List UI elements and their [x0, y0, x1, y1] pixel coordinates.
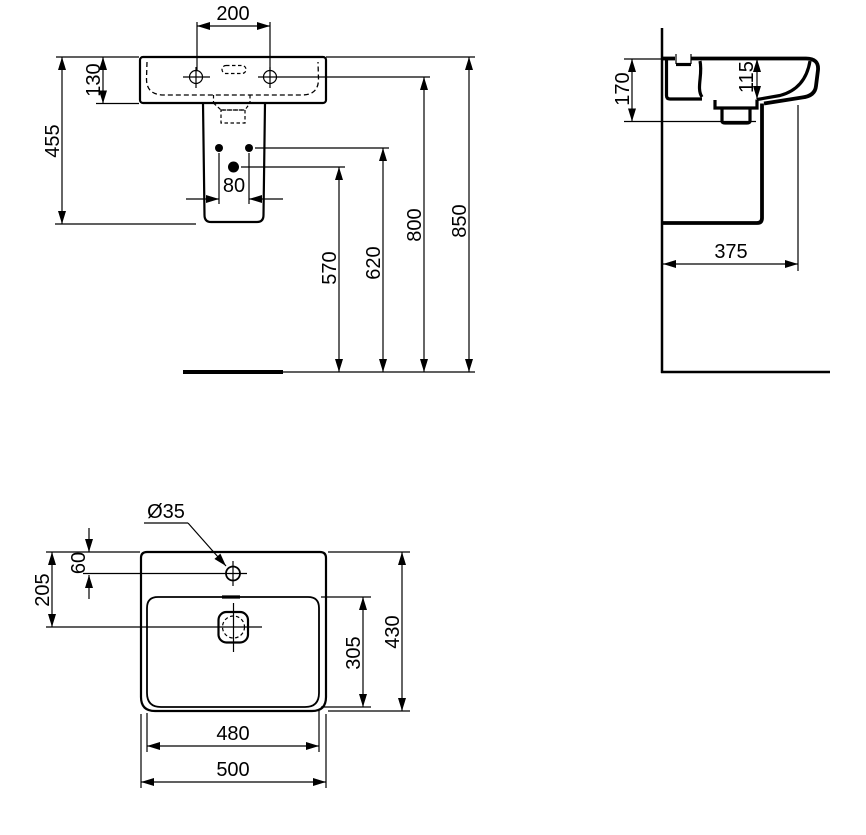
dim-floor-to-rim: 850 [326, 57, 475, 372]
front-view: 200 130 455 80 570 [42, 3, 475, 372]
dim-label-500: 500 [216, 759, 249, 781]
dim-edge-to-drain: 205 [32, 552, 54, 627]
dim-label-480: 480 [216, 723, 249, 745]
dim-rim-to-underside: 170 [612, 59, 756, 122]
fixing-hole-left [215, 144, 223, 152]
basin-outline [140, 57, 326, 103]
dim-taphole-diameter: Ø35 [144, 501, 226, 566]
dim-label-850: 850 [449, 204, 471, 237]
dim-label-60: 60 [68, 552, 90, 574]
dim-floor-to-drain: 570 [241, 167, 345, 372]
dim-label-570: 570 [319, 251, 341, 284]
side-view: 170 115 375 [612, 28, 830, 373]
overflow-channel-section [699, 61, 702, 97]
fixing-hole-right [245, 144, 253, 152]
dim-label-375: 375 [714, 241, 747, 263]
dim-label-dia35: Ø35 [147, 501, 185, 523]
dim-bowl-width: 480 [147, 710, 319, 752]
dim-label-305: 305 [343, 636, 365, 669]
drain-flange-upper [715, 100, 757, 109]
dim-label-115: 115 [736, 61, 758, 93]
dim-label-800: 800 [404, 208, 426, 241]
dim-fixing-hole-spacing: 80 [186, 153, 283, 204]
dim-rim-to-bowl-bottom: 115 [736, 59, 758, 99]
dim-floor-to-tapholes: 800 [258, 77, 430, 372]
dim-overall-depth: 430 [328, 552, 410, 711]
dim-bowl-front-to-back: 305 [321, 597, 371, 707]
dim-taphole-spacing: 200 [197, 3, 270, 71]
trap-pipe-hidden [221, 110, 245, 123]
bowl-inner-profile [757, 61, 810, 100]
drawing-canvas: 200 130 455 80 570 [0, 0, 866, 835]
dim-label-455: 455 [42, 124, 64, 157]
dim-rim-to-pedestal-bottom: 455 [42, 57, 196, 224]
dim-wall-to-front: 375 [663, 105, 798, 271]
drain-flange-lower [722, 108, 750, 123]
dim-edge-to-taphole: 60 [46, 528, 140, 599]
dim-label-80: 80 [223, 175, 245, 197]
dim-rim-to-basin-bottom: 130 [83, 57, 139, 104]
dim-label-130: 130 [83, 63, 105, 96]
dim-label-200: 200 [216, 3, 249, 25]
dim-label-205: 205 [32, 573, 54, 606]
leader-line [188, 523, 226, 566]
dim-label-170: 170 [612, 72, 634, 105]
overflow-slot-hidden [222, 66, 246, 74]
basin-inner-rim-hidden [147, 62, 319, 95]
drain-hole [228, 162, 239, 173]
dim-label-430: 430 [382, 615, 404, 648]
plan-view: Ø35 60 205 305 430 [32, 501, 410, 788]
technical-drawing: 200 130 455 80 570 [0, 0, 866, 835]
dim-label-620: 620 [363, 246, 385, 279]
